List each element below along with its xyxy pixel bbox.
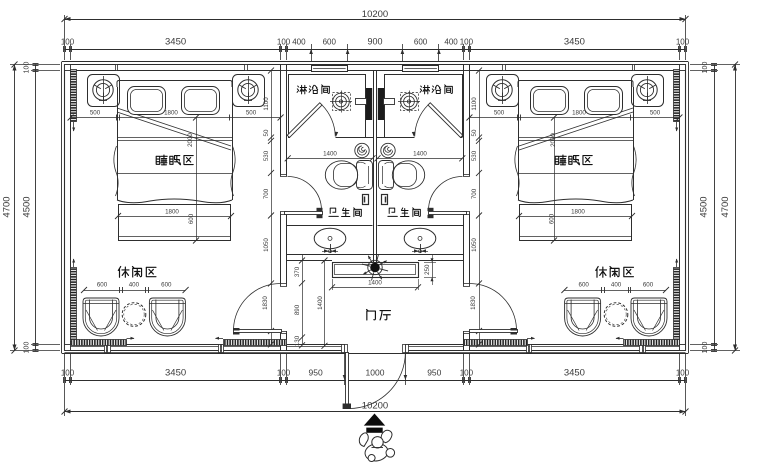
svg-text:400: 400: [129, 282, 140, 289]
svg-text:100: 100: [24, 342, 31, 354]
svg-text:1800: 1800: [164, 110, 178, 117]
svg-text:600: 600: [188, 213, 195, 224]
svg-text:1830: 1830: [262, 296, 269, 310]
svg-text:1800: 1800: [572, 110, 586, 117]
svg-text:500: 500: [90, 110, 101, 117]
svg-text:370: 370: [294, 266, 301, 277]
svg-text:1050: 1050: [471, 238, 478, 252]
svg-text:950: 950: [309, 368, 323, 378]
svg-text:1400: 1400: [323, 150, 337, 157]
svg-text:3450: 3450: [564, 368, 585, 379]
svg-text:700: 700: [263, 188, 270, 199]
svg-text:250: 250: [424, 264, 431, 275]
svg-text:100: 100: [24, 62, 31, 74]
svg-text:1800: 1800: [571, 209, 585, 216]
svg-text:2000: 2000: [550, 133, 557, 147]
svg-text:900: 900: [367, 36, 382, 46]
svg-text:400: 400: [292, 37, 306, 46]
svg-text:2000: 2000: [187, 133, 194, 147]
svg-text:4700: 4700: [720, 196, 731, 217]
svg-text:500: 500: [650, 110, 661, 117]
svg-text:100: 100: [676, 369, 690, 378]
svg-text:1830: 1830: [470, 296, 477, 310]
svg-text:600: 600: [643, 282, 654, 289]
svg-text:1000: 1000: [366, 368, 385, 378]
svg-text:1100: 1100: [263, 97, 270, 111]
svg-text:500: 500: [494, 110, 505, 117]
svg-text:100: 100: [702, 342, 709, 354]
svg-text:1400: 1400: [317, 296, 324, 310]
svg-text:100: 100: [702, 62, 709, 74]
svg-text:600: 600: [323, 37, 337, 46]
svg-text:600: 600: [414, 37, 428, 46]
svg-text:100: 100: [277, 369, 291, 378]
svg-text:400: 400: [444, 37, 458, 46]
svg-text:100: 100: [460, 37, 474, 46]
svg-text:400: 400: [611, 282, 622, 289]
svg-text:130: 130: [294, 335, 301, 346]
svg-text:1800: 1800: [165, 209, 179, 216]
svg-text:1400: 1400: [413, 150, 427, 157]
svg-text:600: 600: [579, 282, 590, 289]
svg-text:3450: 3450: [564, 36, 585, 47]
svg-text:530: 530: [471, 150, 478, 161]
svg-text:3450: 3450: [165, 368, 186, 379]
svg-text:4700: 4700: [2, 196, 13, 217]
svg-text:10200: 10200: [362, 9, 388, 20]
svg-text:50: 50: [471, 129, 478, 136]
svg-text:600: 600: [161, 282, 172, 289]
svg-text:100: 100: [676, 37, 690, 46]
svg-text:600: 600: [97, 282, 108, 289]
svg-text:530: 530: [263, 150, 270, 161]
svg-text:100: 100: [460, 369, 474, 378]
svg-text:700: 700: [471, 188, 478, 199]
svg-text:3450: 3450: [165, 36, 186, 47]
svg-text:4500: 4500: [699, 196, 710, 217]
svg-text:100: 100: [277, 37, 291, 46]
svg-text:50: 50: [263, 129, 270, 136]
svg-text:500: 500: [246, 110, 257, 117]
svg-text:1050: 1050: [263, 238, 270, 252]
svg-text:4500: 4500: [22, 196, 33, 217]
svg-text:100: 100: [61, 369, 75, 378]
svg-text:1100: 1100: [471, 97, 478, 111]
svg-text:100: 100: [61, 37, 75, 46]
svg-text:950: 950: [427, 368, 441, 378]
svg-text:1400: 1400: [368, 279, 382, 286]
svg-text:890: 890: [294, 304, 301, 315]
